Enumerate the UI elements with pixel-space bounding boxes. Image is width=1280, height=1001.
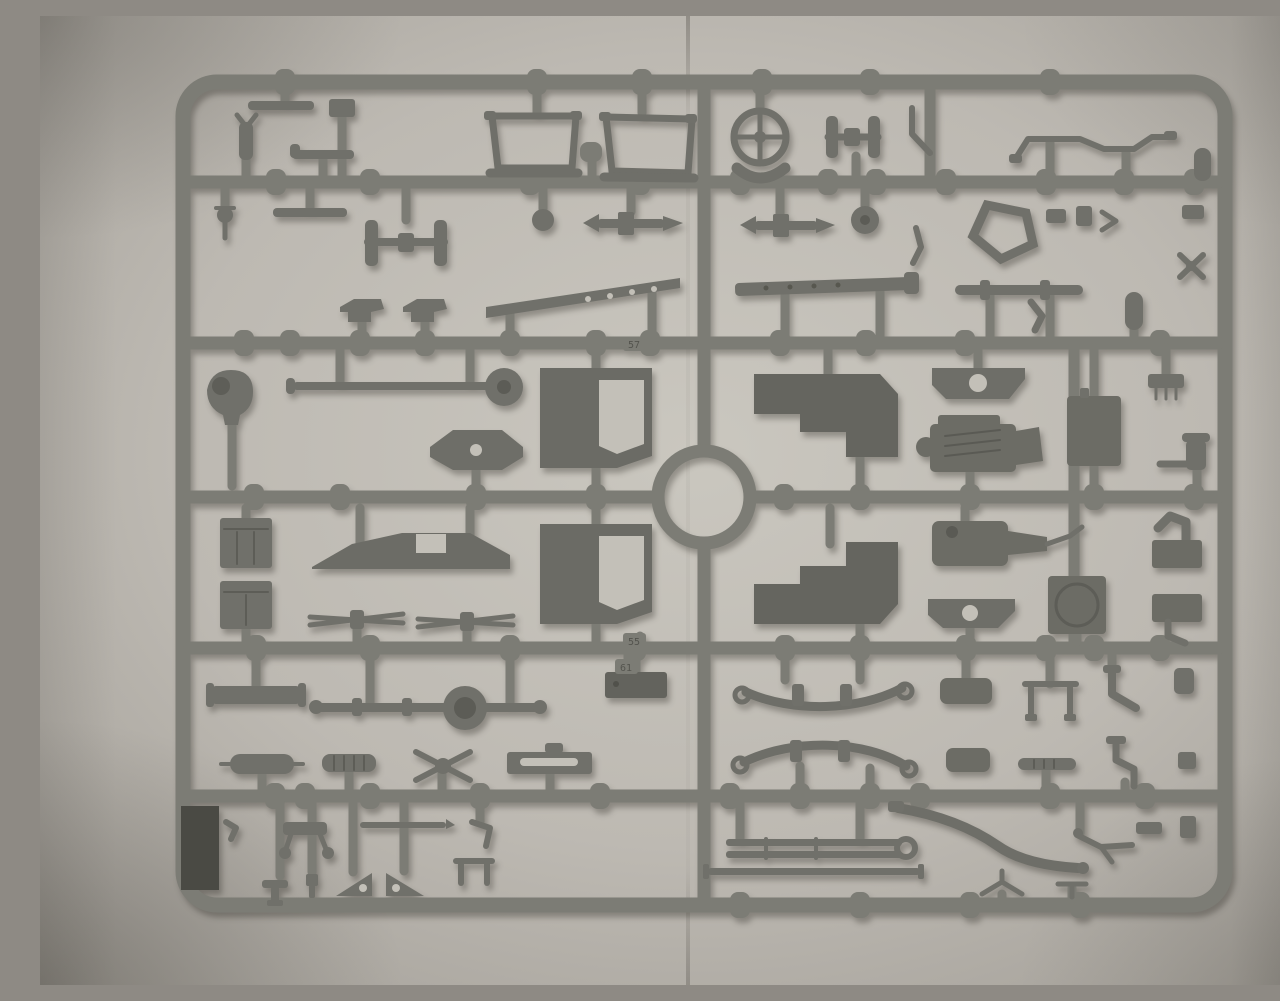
gusset-hole [392,884,400,892]
tiny-box [1178,752,1196,769]
mount-plate-hole [969,374,987,392]
axle-collar [352,698,362,716]
gate-lump [280,330,300,356]
rod-flange [918,864,924,879]
gusset-hole [359,884,367,892]
long-pin [360,822,446,828]
cab-panel-window [599,380,644,454]
ribbed-roller [322,754,376,772]
stabilizer-end [1164,131,1177,140]
carrier-wheel [322,847,334,859]
spring-clamp [838,740,850,762]
wishbone [1077,835,1132,847]
cross-hub [1186,261,1196,271]
gate-lump [234,330,254,356]
ball-joint [532,209,554,231]
gate-lump [266,169,286,195]
channel-bar [735,277,913,296]
capsule-part [1125,292,1143,330]
pipe-flange [1103,665,1121,673]
fender [754,374,898,457]
driveshaft-tip [663,216,683,231]
spring-clamp [460,612,474,631]
carrier-leg [320,834,326,849]
cab-panel-window [599,536,644,610]
engine-pulley [916,437,936,457]
flat-bar [212,686,300,704]
gusset [336,873,372,896]
window-ear [484,111,496,120]
bracket-tab [398,233,414,252]
cylinder-bracket [940,678,992,704]
spring-clamp [790,740,802,762]
gate-lump [774,484,794,510]
bent-bracket [472,822,490,846]
knuckle-detail [212,377,230,395]
lever-knob [290,144,300,158]
frame-label-tab [181,806,219,890]
link-bar [273,208,347,217]
stabilizer-bar [1016,137,1168,158]
window-ear [570,111,582,120]
part-number: 57 [628,340,640,351]
gate-lump [850,892,870,918]
rivet [764,286,769,291]
tie-rod-end [286,378,295,394]
exhaust-tip [1077,862,1089,874]
elbow-pipe [1112,671,1136,708]
cap-cylinder [1194,148,1211,181]
elbow-pipe [1168,622,1185,643]
spring-eye [735,688,749,702]
faucet-body [1186,440,1206,470]
gate-lump [936,169,956,195]
tow-hook-body [239,122,253,160]
steering-wheel-hub [754,131,766,143]
gusset [386,873,424,896]
channel-hook [904,272,919,294]
sprue-photo: 575561 [40,16,1280,985]
steering-arm-hole [607,293,613,299]
carrier-leg [286,834,291,849]
gate-lump [590,783,610,809]
gate-lump [730,892,750,918]
clip [1102,212,1116,230]
gearbox [932,521,1008,566]
steering-arm-hole [629,289,635,295]
exhaust-pipe [898,808,1078,868]
driveshaft-cone [740,216,756,234]
rod-flange [703,864,709,879]
mount-plate-hole [962,605,978,621]
n-stand-foot [1064,714,1076,721]
spring-eye [733,758,747,772]
tow-hook-horn [249,115,256,124]
sprue-illustration: 575561 [40,16,1280,985]
steering-arm-hole [585,296,591,302]
spring-clamp [350,610,364,629]
exhaust-flange [888,801,904,812]
cap-part [1174,668,1194,694]
gate-lump [330,484,350,510]
axle-end [533,700,547,714]
window-ear [685,114,697,123]
pulley-large-hub [497,380,511,394]
fender [754,542,898,624]
tee-valve-stem [271,887,279,901]
arch-notch [416,534,446,553]
fitting [1136,822,1162,834]
engine-head [938,415,1000,428]
axle-end [309,700,323,714]
x-bracket-hub [435,758,451,774]
sprue-center-ring [658,451,750,543]
pin-block [1148,374,1184,388]
leaf-spring [746,688,902,707]
long-rod [708,868,920,875]
differential-hub [454,697,476,719]
anvil-bracket [403,299,447,322]
cab-floor-arch [312,533,510,569]
sprue-frame-group: 575561 [181,69,1225,918]
gate-lump [818,169,838,195]
pentagon-frame [973,205,1033,259]
panel-dot [613,681,619,687]
rivet [812,284,817,289]
wishbone-eye [1073,828,1083,838]
rivet [836,283,841,288]
leaf-spring [744,745,906,766]
fitting [1076,206,1092,226]
axle-rod [955,285,1083,295]
gate-lump [360,783,380,809]
axle-collar [1040,280,1050,300]
spring-clamp [840,684,852,706]
pulley-hub [860,215,870,225]
steering-arm-hole [651,286,657,292]
clip-block [1182,205,1204,219]
shackle-center [844,128,860,146]
gate-lump [860,69,880,95]
ribbed-bar [1018,758,1076,770]
small-box [1152,594,1202,622]
spring-clamp [792,684,804,706]
muffler [230,754,294,774]
gate-lump [1135,783,1155,809]
curved-bracket [737,168,785,178]
gearbox-detail [946,526,958,538]
carrier-wheel [279,847,291,859]
lever-part [292,150,354,159]
gate-lump [360,169,380,195]
pipe-flange [1106,736,1126,744]
front-axle-shaft [316,703,542,712]
axle-collar [402,698,412,716]
n-stand-foot [1025,714,1037,721]
driveshaft-cone [583,214,599,232]
block-part [329,99,355,117]
window-ear [599,112,611,121]
window-joiner [580,142,602,162]
tee-valve-base [267,900,283,906]
rivet [788,285,793,290]
steering-knuckle [207,370,253,425]
gate-lump [856,330,876,356]
cab-window-frame [492,116,576,168]
tee-valve-bar [262,880,288,888]
gearbox-tail [1008,531,1047,555]
axle-plate-hole [470,444,482,456]
engine-block [930,424,1016,472]
flat-bar-cap [298,683,306,707]
rod-part [248,101,314,110]
tie-rod [293,382,491,390]
crate [220,518,272,568]
anvil-bracket [340,299,384,322]
battery-terminal [1080,388,1089,398]
bent-lever [913,228,921,263]
air-duct [1158,516,1186,544]
cylinder-small [946,748,990,772]
part-number: 61 [620,663,632,674]
driveshaft-block [618,212,634,235]
plug-part [306,874,318,886]
fitting [1046,209,1066,223]
channel-slot [520,758,578,766]
driveshaft-block [773,214,789,237]
window-sill [604,177,694,178]
hook-part [226,822,236,839]
ladder-cap [897,839,915,857]
small-box [1152,540,1202,568]
driveshaft-tip [816,218,835,233]
elbow-pipe [1031,302,1042,330]
axle-collar [980,280,990,300]
plug-stem [309,885,315,898]
faucet-cap [1182,433,1210,442]
gate-lump [960,892,980,918]
cab-window-frame [606,117,692,173]
channel-hump [545,743,563,753]
part-number: 55 [628,637,640,648]
fitting [1180,816,1196,838]
battery-box [1067,396,1121,466]
flat-bar-cap [206,683,214,707]
stabilizer-end [1009,154,1022,163]
bellhousing [1016,427,1043,465]
pin-tip [446,819,455,829]
gate-lump [955,330,975,356]
gate-lump [1040,69,1060,95]
gate-lump [1084,635,1104,661]
